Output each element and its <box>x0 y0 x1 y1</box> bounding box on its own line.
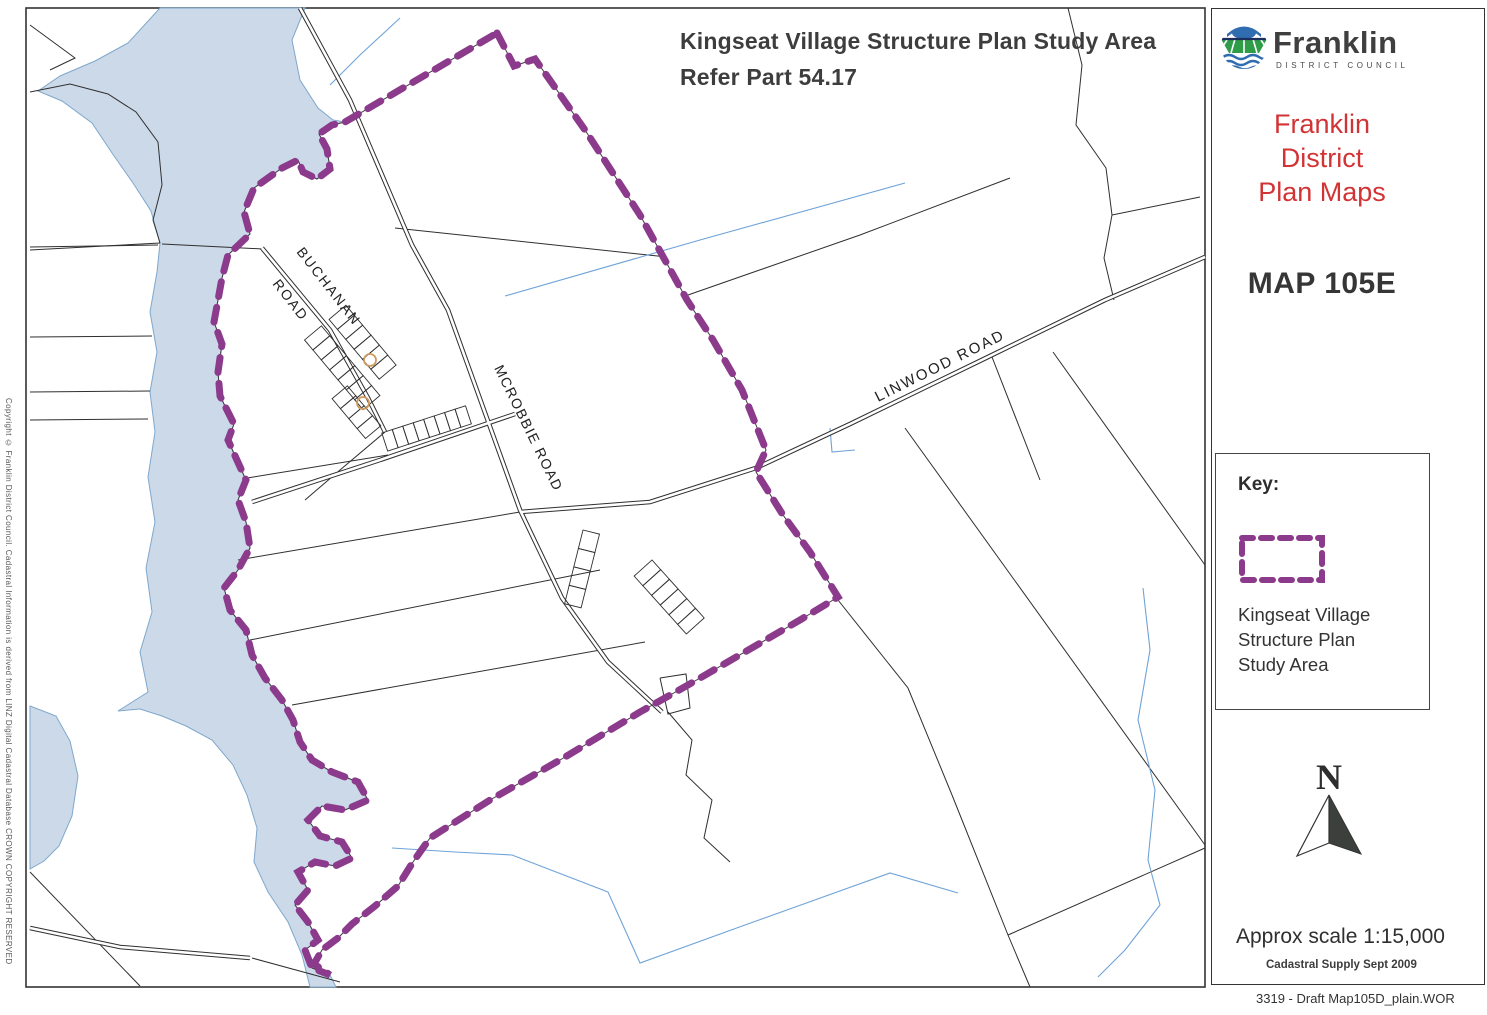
map-title-line1: Kingseat Village Structure Plan Study Ar… <box>680 28 1220 55</box>
map-key: Key: Kingseat Village Structure Plan Stu… <box>1215 453 1430 710</box>
plan-title-line: Plan Maps <box>1212 175 1432 209</box>
map-title-line2: Refer Part 54.17 <box>680 64 1220 91</box>
key-item-label: Kingseat Village Structure Plan Study Ar… <box>1238 602 1370 677</box>
council-logo-icon <box>1219 21 1269 71</box>
council-logo-name: Franklin <box>1273 25 1398 61</box>
cadastral-supply-text: Cadastral Supply Sept 2009 <box>1266 959 1417 971</box>
scale-text: Approx scale 1:15,000 <box>1236 925 1445 949</box>
file-reference-text: 3319 - Draft Map105D_plain.WOR <box>1256 991 1455 1006</box>
map-code: MAP 105E <box>1212 267 1432 301</box>
key-title: Key: <box>1238 474 1279 496</box>
plan-title-line: District <box>1212 141 1432 175</box>
council-logo-subtitle: DISTRICT COUNCIL <box>1276 61 1409 70</box>
plan-maps-title: Franklin District Plan Maps <box>1212 107 1432 209</box>
council-logo: Franklin DISTRICT COUNCIL <box>1217 21 1477 77</box>
side-panel: Franklin DISTRICT COUNCIL Franklin Distr… <box>1211 8 1485 985</box>
plan-title-line: Franklin <box>1212 107 1432 141</box>
north-arrow: N <box>1282 753 1382 868</box>
copyright-text: Copyright © Franklin District Council. C… <box>4 398 13 1013</box>
study-area-legend-swatch <box>1236 530 1336 590</box>
scanned-plan-map-page: BUCHANAN ROAD MCROBBIE ROAD LINWOOD ROAD… <box>0 0 1487 1015</box>
north-label: N <box>1316 757 1342 797</box>
